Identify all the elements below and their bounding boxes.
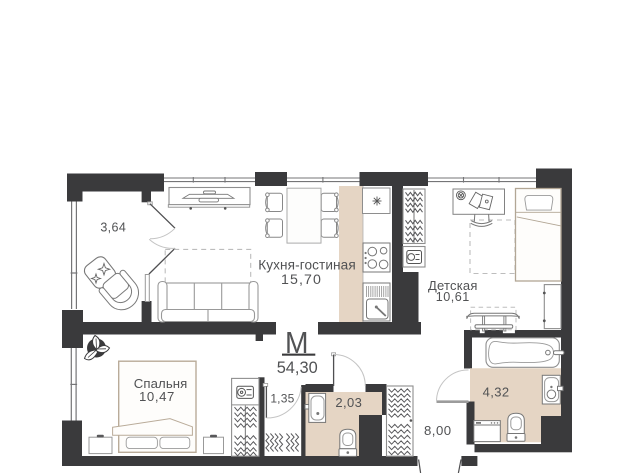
svg-text:10,47: 10,47 [139,389,175,404]
svg-text:10,61: 10,61 [436,290,470,304]
svg-text:2,03: 2,03 [335,395,362,410]
svg-text:8,00: 8,00 [424,423,452,438]
svg-text:54,30: 54,30 [277,358,318,377]
svg-text:15,70: 15,70 [281,272,322,288]
svg-text:4,32: 4,32 [483,385,510,400]
svg-text:1,35: 1,35 [270,392,294,406]
svg-text:3,64: 3,64 [100,221,126,235]
svg-text:Кухня-гостиная: Кухня-гостиная [258,258,356,273]
